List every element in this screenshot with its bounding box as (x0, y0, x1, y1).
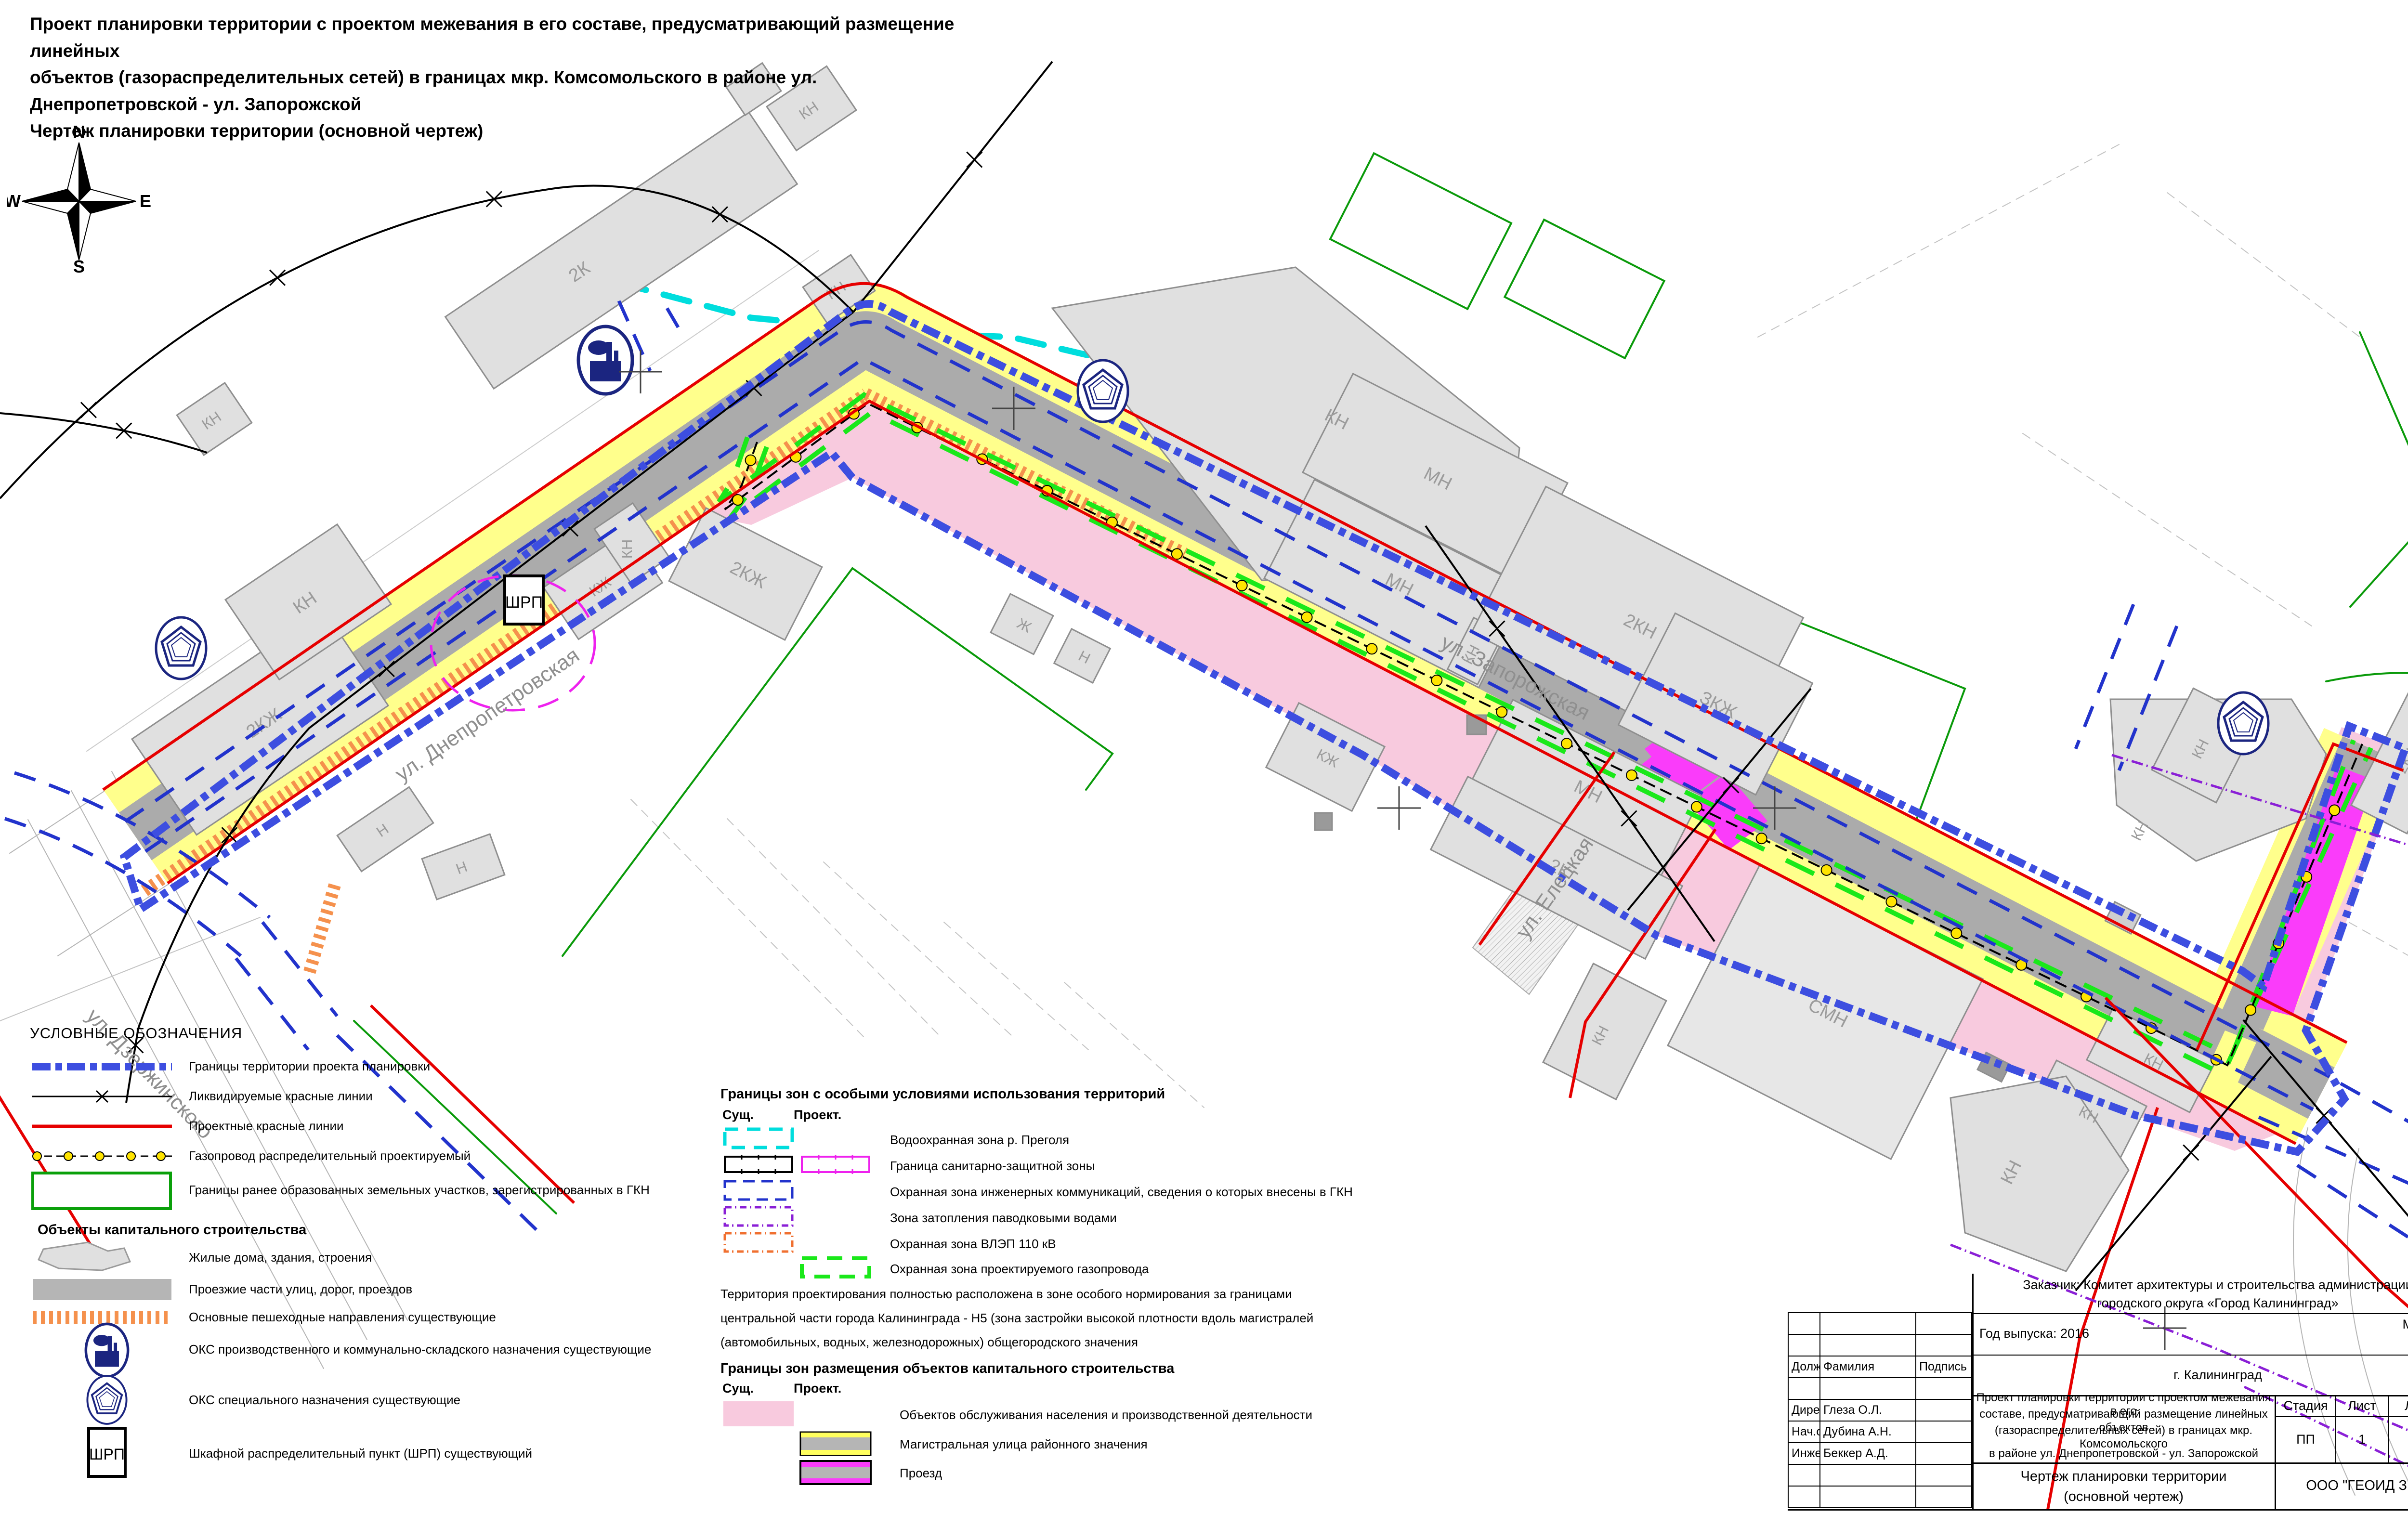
liquidated-swatch (32, 1091, 172, 1102)
compass-rose: N S E W (7, 124, 151, 274)
capital-zones-col-existing: Сущ. (722, 1381, 754, 1396)
compass-north-label: N (73, 124, 85, 142)
drawing-sheet: 2К КН КН 2КЖ КН Н Н КЖ КН 2КЖ Ж Н КН КН … (0, 0, 2408, 1513)
zones-note-3: (автомобильных, водных, железнодорожных)… (720, 1335, 1138, 1350)
compass-south-label: S (73, 257, 85, 274)
col-name: Фамилия (1820, 1356, 1916, 1378)
pentagon-icon (156, 617, 206, 679)
compass-west-label: W (7, 191, 21, 211)
capital-zones-col-project: Проект. (794, 1381, 841, 1396)
project-name-line-3: (газораспределительных сетей) в границах… (1974, 1429, 2274, 1446)
title-block: Заказчик: Комитет архитектуры и строител… (1788, 1274, 2408, 1511)
pentagon-icon (1078, 360, 1128, 422)
project-name-line-4: в районе ул. Днепропетровской - ул. Запо… (1974, 1446, 2274, 1462)
shrp-icon: ШРП (89, 1428, 125, 1476)
flood-zone-swatch (725, 1207, 792, 1226)
pentagon-icon (87, 1376, 126, 1424)
signature-table: Должн-тьФамилияПодпись ДиректорГлеза О.Л… (1788, 1312, 1973, 1508)
houses-swatch (39, 1242, 130, 1270)
sheet-label: Лист (2336, 1395, 2388, 1416)
service-zone-swatch (723, 1401, 794, 1426)
legend-heading: УСЛОВНЫЕ ОБОЗНАЧЕНИЯ (30, 1025, 242, 1042)
row-director-name: Глеза О.Л. (1820, 1400, 1916, 1422)
arterial-swatch (800, 1432, 871, 1455)
gkn-swatch (33, 1173, 170, 1209)
sheets-label: Листов (2389, 1395, 2408, 1416)
carriageway-swatch (33, 1279, 171, 1300)
utilities-zone-swatch (725, 1181, 792, 1200)
zones-note-1: Территория проектирования полностью расп… (720, 1287, 1292, 1302)
svg-text:ШРП: ШРП (505, 593, 543, 612)
sanitary-existing-swatch (725, 1155, 792, 1174)
stage-value: ПП (2276, 1416, 2335, 1462)
row-engineer-position: Инженер (1789, 1443, 1820, 1465)
title-line-1: Проект планировки территории с проектом … (30, 11, 983, 64)
customer-line-2: городского округа «Город Калининград» (1974, 1294, 2408, 1312)
company-name: ООО "ГЕОИД ЗЕМ" (2276, 1462, 2408, 1509)
gas-zone-swatch (802, 1258, 869, 1277)
sheets-value: 7 (2389, 1416, 2408, 1462)
title-line-2: объектов (газораспределительных сетей) в… (30, 64, 983, 117)
zones-col-project: Проект. (794, 1108, 841, 1122)
water-zone-swatch (725, 1129, 792, 1148)
drawing-title: Проект планировки территории с проектом … (30, 11, 983, 144)
gas-swatch (32, 1152, 172, 1161)
city-label: г. Калининград (1974, 1355, 2408, 1395)
zones-note-2: центральной части города Калининграда - … (720, 1311, 1313, 1326)
stage-label: Стадия (2276, 1395, 2335, 1416)
drawing-name-line-2: (основной чертеж) (1974, 1487, 2274, 1507)
row-engineer-name: Беккер А.Д. (1820, 1443, 1916, 1465)
customer-line-1: Заказчик: Комитет архитектуры и строител… (1974, 1276, 2408, 1294)
factory-icon (86, 1324, 128, 1376)
sheet-value: 1 (2336, 1416, 2388, 1462)
driveway-swatch (800, 1461, 871, 1484)
col-sign: Подпись (1916, 1356, 1972, 1378)
row-director-position: Директор (1789, 1400, 1820, 1422)
svg-text:ШРП: ШРП (89, 1446, 125, 1463)
compass-east-label: E (140, 191, 151, 211)
scale-value: 1:1000 (2317, 1333, 2408, 1352)
row-dept-position: Нач.отд. (1789, 1422, 1820, 1443)
pentagon-icon (2218, 692, 2268, 754)
vlep-zone-swatch (725, 1233, 792, 1252)
shrp-symbol: ШРП (505, 576, 543, 624)
row-dept-name: Дубина А.Н. (1820, 1422, 1916, 1443)
year-of-issue: Год выпуска: 2016 (1974, 1313, 2268, 1354)
drawing-name-line-1: Чертеж планировки территории (1974, 1466, 2274, 1487)
zones-legend-heading: Границы зон с особыми условиями использо… (720, 1086, 1165, 1102)
svg-text:КН: КН (618, 539, 635, 559)
legend-capital-heading: Объекты капитального строительства (38, 1222, 306, 1238)
scale-label: Масштаб (2317, 1315, 2408, 1333)
zones-col-existing: Сущ. (722, 1108, 754, 1122)
title-line-3: Чертеж планировки территории (основной ч… (30, 117, 983, 144)
col-position: Должн-ть (1789, 1356, 1820, 1378)
sanitary-project-swatch (802, 1155, 869, 1174)
factory-icon (578, 326, 632, 394)
capital-zones-heading: Границы зон размещения объектов капиталь… (720, 1361, 1174, 1377)
